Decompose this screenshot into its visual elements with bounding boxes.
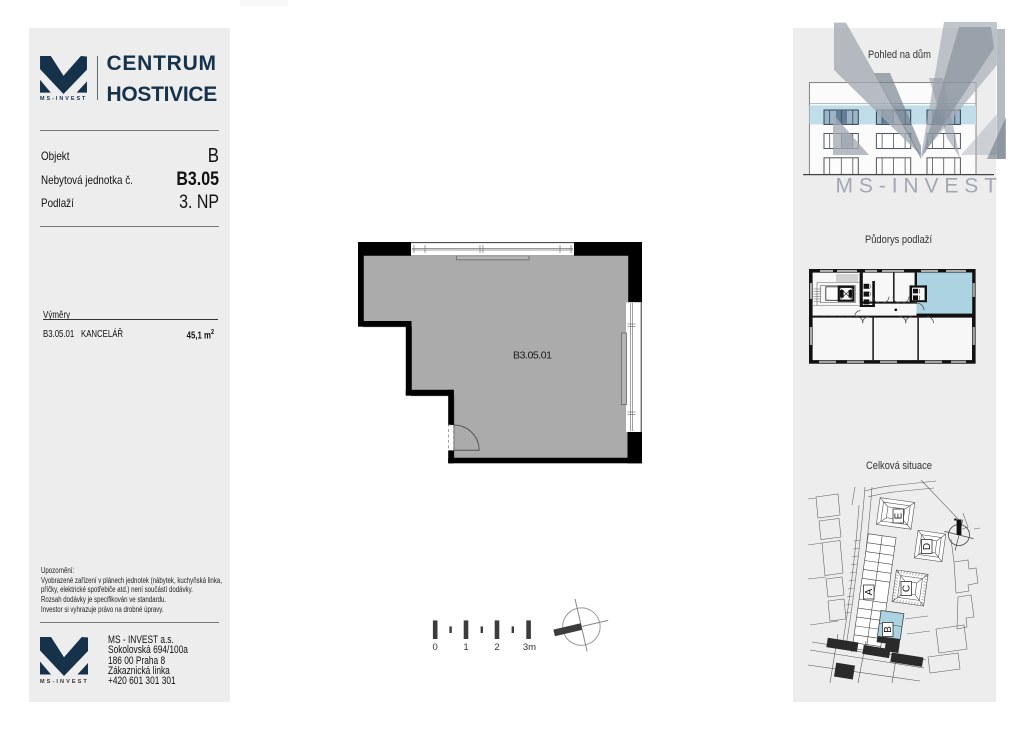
svg-text:1: 1 [463,642,468,653]
svg-text:B: B [883,626,894,633]
svg-text:2: 2 [494,642,499,653]
svg-text:E: E [894,512,905,519]
svg-text:B3.05.01: B3.05.01 [513,350,552,362]
svg-text:MS-INVEST: MS-INVEST [836,175,1003,198]
svg-text:A: A [864,588,875,595]
svg-text:C: C [902,585,913,592]
svg-text:3m: 3m [523,642,536,653]
svg-text:0: 0 [433,642,438,653]
svg-text:D: D [922,543,933,550]
